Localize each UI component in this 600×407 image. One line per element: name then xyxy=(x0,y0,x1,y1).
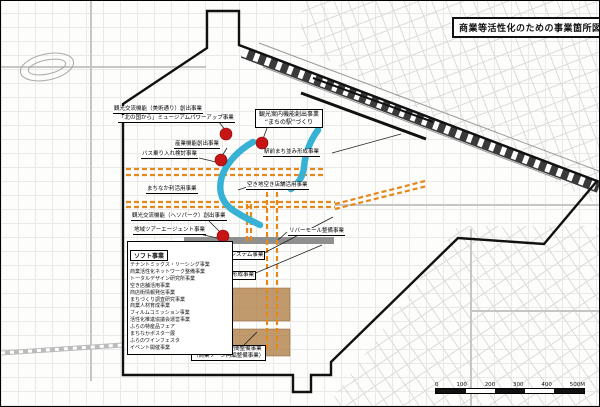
label-machinaka: まちなか利活用事業 xyxy=(146,186,198,194)
soft-item: テナントミックス・リーシング事業 xyxy=(130,262,230,269)
soft-item: 空き店舗活用事業 xyxy=(130,283,230,290)
marker-sangyo xyxy=(215,154,227,166)
soft-item: 商店街情報発信事業 xyxy=(130,290,230,297)
label-akichi: 空き地空き店舗活用事業 xyxy=(246,182,309,190)
map-title: 商業等活性化のための事業箇所図 xyxy=(452,17,600,38)
soft-projects-header: ソフト事業 xyxy=(130,250,168,261)
map-canvas: 商業等活性化のための事業箇所図 観光交流機能（美術通り）創出事業 「北の国から」… xyxy=(0,0,600,407)
label-museum-line2: 「北の国から」ミュージアムパワーアップ事業 xyxy=(118,115,235,123)
label-machinoeki-line1: 観光案内機能創出事業 xyxy=(259,111,319,119)
scale-tick: 300 xyxy=(513,382,524,388)
soft-projects-box: ソフト事業 テナントミックス・リーシング事業 商業活性化ネットワーク整備事業 ト… xyxy=(127,241,233,355)
soft-item: ふらのワインフェスタ xyxy=(130,338,230,345)
scale-tick: 500M xyxy=(570,382,585,388)
scale-tick: 100 xyxy=(456,382,467,388)
scale-tick: 0 xyxy=(435,382,439,388)
label-machinoeki: 観光案内機能創出事業 “まちの駅”づくり xyxy=(255,109,323,128)
label-machinoeki-line2: “まちの駅”づくり xyxy=(259,119,319,127)
southwest-road xyxy=(1,345,123,353)
marker-machinoeki xyxy=(256,137,268,149)
marker-museum xyxy=(220,128,232,140)
label-rivermall: リバーモール整備事業 xyxy=(288,228,345,236)
soft-item: イベント開催事業 xyxy=(130,345,230,352)
label-bus: バス乗り入れ検討事業 xyxy=(141,151,198,159)
label-sangyo: 産業機能創出事業 xyxy=(174,141,220,149)
soft-item: トータルデザイン研究所事業 xyxy=(130,276,230,283)
scale-tick: 200 xyxy=(485,382,496,388)
scale-bar: 0 100 200 300 400 500M xyxy=(435,382,585,394)
label-tour: 地域ツアーエージェント事業 xyxy=(133,227,206,235)
scale-tick: 400 xyxy=(541,382,552,388)
label-ekimae: 駅前まち並み形成事業 xyxy=(263,149,320,157)
scale-bar-segments xyxy=(435,388,585,394)
label-museum-line1: 観光交流機能（美術通り）創出事業 xyxy=(113,106,203,114)
soft-item: 商業活性化ネットワーク整備事業 xyxy=(130,269,230,276)
waterway-blue xyxy=(220,130,318,225)
label-heso: 観光交流機能（ヘソパーク）創出事業 xyxy=(131,213,227,221)
soft-item: まちなかポスター展 xyxy=(130,331,230,338)
